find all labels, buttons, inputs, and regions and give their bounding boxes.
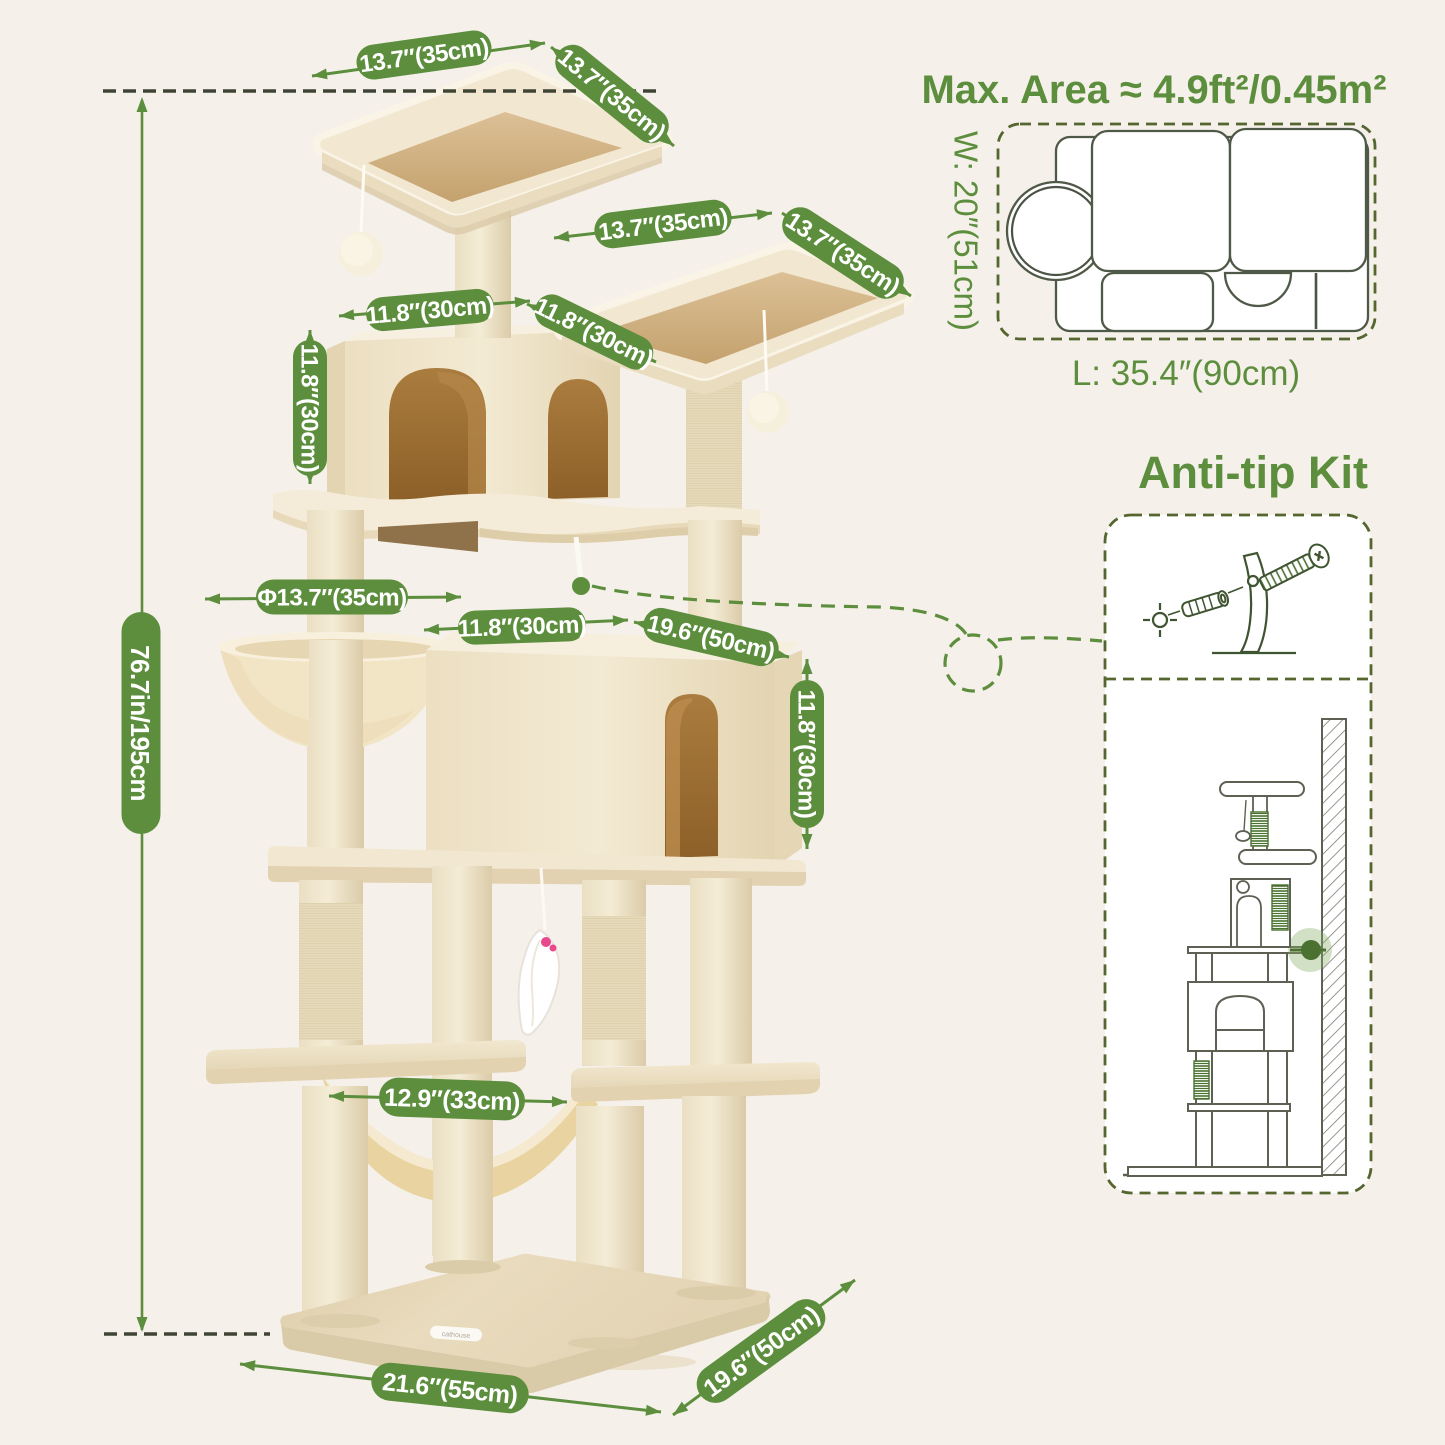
svg-text:11.8″(30cm): 11.8″(30cm) (296, 344, 323, 473)
svg-text:W: 20″(51cm): W: 20″(51cm) (948, 131, 985, 331)
svg-text:Max. Area ≈ 4.9ft²/0.45m²: Max. Area ≈ 4.9ft²/0.45m² (921, 68, 1386, 112)
svg-text:76.7in/195cm: 76.7in/195cm (125, 645, 155, 801)
svg-text:Anti-tip Kit: Anti-tip Kit (1138, 447, 1368, 498)
svg-text:11.8″(30cm): 11.8″(30cm) (457, 611, 587, 642)
svg-text:11.8″(30cm): 11.8″(30cm) (793, 690, 820, 819)
svg-text:Φ13.7″(35cm): Φ13.7″(35cm) (257, 584, 406, 611)
svg-text:12.9″(33cm): 12.9″(33cm) (384, 1084, 521, 1117)
svg-text:L: 35.4″(90cm): L: 35.4″(90cm) (1072, 354, 1300, 393)
